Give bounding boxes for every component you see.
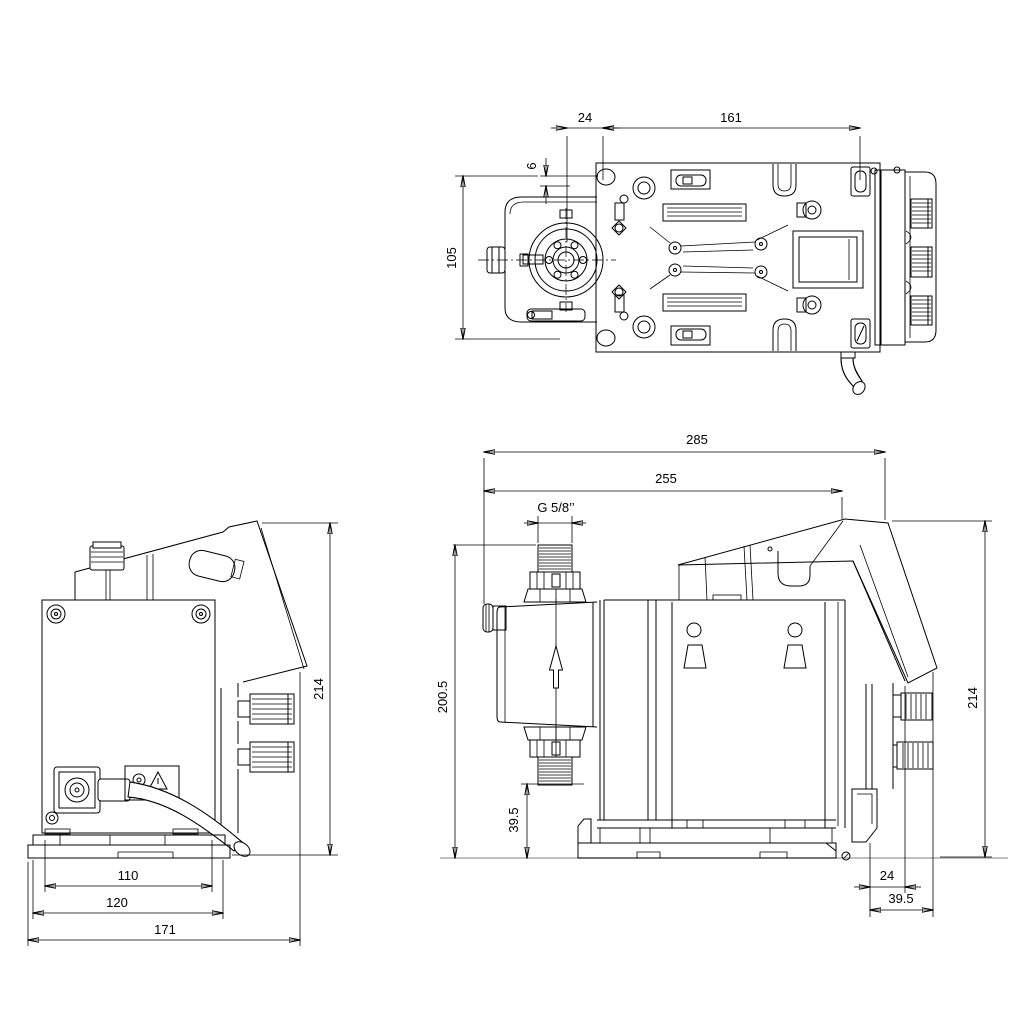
- dim-label: 6: [524, 162, 539, 169]
- back-view-knob: [238, 742, 294, 772]
- top-view-control-unit: [871, 167, 936, 345]
- dim-24-side: 24: [854, 686, 921, 917]
- dim-label: 24: [578, 110, 592, 125]
- dim-label: 285: [686, 432, 708, 447]
- dim-label: 120: [106, 895, 128, 910]
- dim-161-top: 161: [603, 110, 860, 180]
- dim-thread-side: G 5/8’’: [524, 500, 586, 543]
- connector-plug-icon: [911, 247, 932, 277]
- dim-label: 105: [444, 247, 459, 269]
- dim-110-back: 110: [45, 840, 212, 892]
- dim-label: 214: [311, 678, 326, 700]
- dim-label: 214: [965, 687, 980, 709]
- dim-label: 110: [118, 868, 139, 883]
- dim-214-side: 214: [892, 521, 992, 857]
- dim-label: G 5/8’’: [537, 500, 574, 515]
- side-view-knob: [893, 742, 933, 789]
- flow-direction-arrow-icon: [550, 646, 563, 688]
- side-view-body: [597, 595, 872, 828]
- technical-drawing-page: 24 161 6 105: [0, 0, 1024, 1024]
- top-view: 24 161 6 105: [444, 110, 936, 397]
- dim-label: 24: [880, 868, 894, 883]
- back-view-knob: [238, 694, 294, 724]
- side-view-base: [578, 789, 877, 860]
- dosing-pump-dimensional-drawing: 24 161 6 105: [0, 0, 1024, 1024]
- side-view: 285 255 G 5/8’’ 200.5 39.5: [435, 432, 1008, 917]
- dim-label: 161: [720, 110, 742, 125]
- dim-label: 39.5: [888, 891, 913, 906]
- dim-39_5-suction-side: 39.5: [506, 784, 584, 858]
- back-view: 214 110 120 171: [28, 521, 338, 946]
- dim-214-back: 214: [232, 523, 338, 855]
- top-view-baseplate: [596, 163, 880, 358]
- side-view-dosing-head: [483, 545, 597, 785]
- discharge-valve-thread: [538, 545, 572, 572]
- side-view-control-panel: [678, 519, 937, 683]
- dim-label: 255: [655, 471, 677, 486]
- connector-plug-icon: [911, 199, 932, 228]
- top-view-cable: [841, 358, 868, 397]
- connector-plug-icon: [911, 296, 932, 325]
- dim-label: 171: [154, 922, 176, 937]
- side-view-knob: [893, 683, 932, 745]
- dim-label: 39.5: [506, 807, 521, 832]
- dim-label: 200.5: [435, 681, 450, 714]
- top-view-pump-head: [478, 197, 616, 322]
